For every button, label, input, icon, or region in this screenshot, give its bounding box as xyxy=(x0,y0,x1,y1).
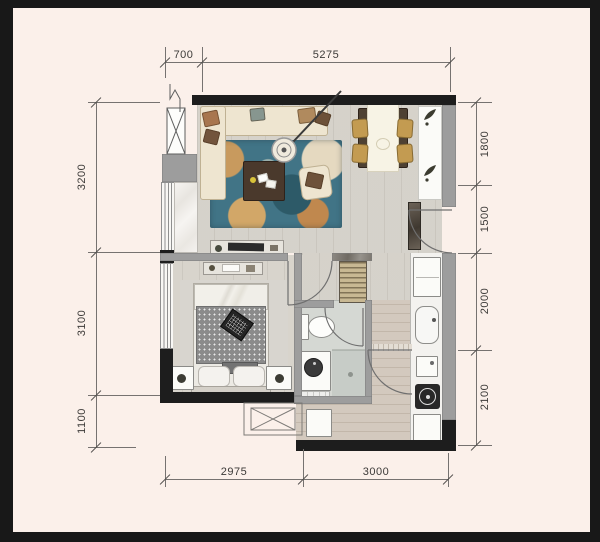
arc-floor-lamp-icon xyxy=(272,91,341,162)
bedroom-door xyxy=(288,261,332,305)
dim-right-2000: 2000 xyxy=(479,281,491,321)
dim-ext xyxy=(88,102,160,103)
dim-top-5275: 5275 xyxy=(306,49,346,61)
dim-ext xyxy=(303,449,304,487)
plant-decor-icon xyxy=(424,109,436,182)
kitchen-door xyxy=(368,350,412,394)
dim-bottom-3000: 3000 xyxy=(356,466,396,478)
plan-root: 700 5275 3200 3100 1100 1800 1500 2000 2… xyxy=(0,0,600,542)
dim-left-3200: 3200 xyxy=(76,157,88,197)
ac-platform-icon xyxy=(244,403,302,435)
dim-bottom-2975: 2975 xyxy=(214,466,254,478)
dim-left-1100: 1100 xyxy=(76,401,88,441)
dim-left-3100: 3100 xyxy=(76,303,88,343)
casement-window-icon xyxy=(167,108,185,154)
dim-line-top xyxy=(165,62,450,63)
bathroom-door xyxy=(325,308,363,346)
dim-line-right xyxy=(476,102,477,445)
entry-door xyxy=(409,210,452,253)
dim-ext xyxy=(88,395,160,396)
plan-paper: 700 5275 3200 3100 1100 1800 1500 2000 2… xyxy=(13,8,590,532)
dim-ext xyxy=(202,47,203,92)
dim-ext xyxy=(450,47,451,92)
floor-plan-image: 700 5275 3200 3100 1100 1800 1500 2000 2… xyxy=(0,0,600,542)
dim-line-bottom xyxy=(165,479,448,480)
dim-ext xyxy=(88,252,160,253)
dim-right-2100: 2100 xyxy=(479,377,491,417)
dim-ext xyxy=(448,453,449,487)
dim-right-1800: 1800 xyxy=(479,124,491,164)
plan-linework xyxy=(0,0,600,542)
dim-right-1500: 1500 xyxy=(479,199,491,239)
dim-top-700: 700 xyxy=(165,49,202,61)
dim-ext xyxy=(165,456,166,487)
